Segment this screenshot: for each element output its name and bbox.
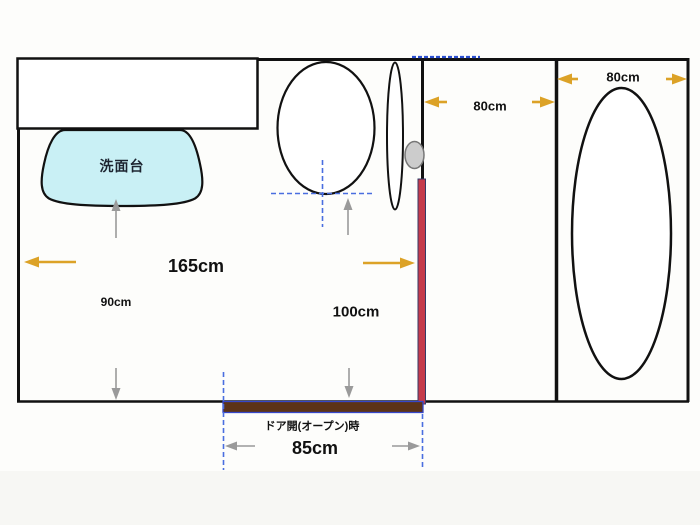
- arrow-left-bathroom: [557, 74, 578, 85]
- floor-plan-drawing: [0, 0, 700, 525]
- arrow-left-door-open: [225, 442, 255, 451]
- arrow-right-corridor: [532, 97, 555, 108]
- doorknob-ellipse: [405, 142, 424, 169]
- door-open-panel: [223, 402, 423, 413]
- arrow-right-door-open: [392, 442, 420, 451]
- door-open-label: ドア開(オープン)時: [265, 422, 360, 433]
- toilet-ellipse: [278, 62, 375, 194]
- arrow-down-basin: [112, 368, 121, 400]
- narrow-fixture-ellipse: [387, 63, 403, 210]
- dim-basin-clearance-label: 90cm: [101, 296, 132, 308]
- dim-bathroom-width-label: 80cm: [606, 71, 639, 84]
- dim-door-clearance-label: 100cm: [333, 305, 380, 320]
- dim-corridor-width-label: 80cm: [473, 100, 506, 113]
- arrow-up-toilet: [344, 198, 353, 235]
- arrow-down-toilet: [345, 368, 354, 398]
- washbasin-label: 洗面台: [100, 159, 145, 173]
- arrow-right-room-width: [363, 258, 415, 269]
- counter-rect: [18, 59, 258, 129]
- dim-room-width-label: 165cm: [168, 257, 224, 275]
- bathtub-ellipse: [572, 88, 671, 379]
- door-closed-bar: [418, 179, 426, 404]
- arrow-left-room-width: [24, 257, 76, 268]
- arrow-left-corridor: [424, 97, 447, 108]
- arrow-right-bathroom: [666, 74, 687, 85]
- dim-door-open-width-label: 85cm: [292, 439, 338, 457]
- floor-plan-canvas: 洗面台 165cm 90cm 100cm 80cm 80cm ドア開(オープン)…: [0, 0, 700, 525]
